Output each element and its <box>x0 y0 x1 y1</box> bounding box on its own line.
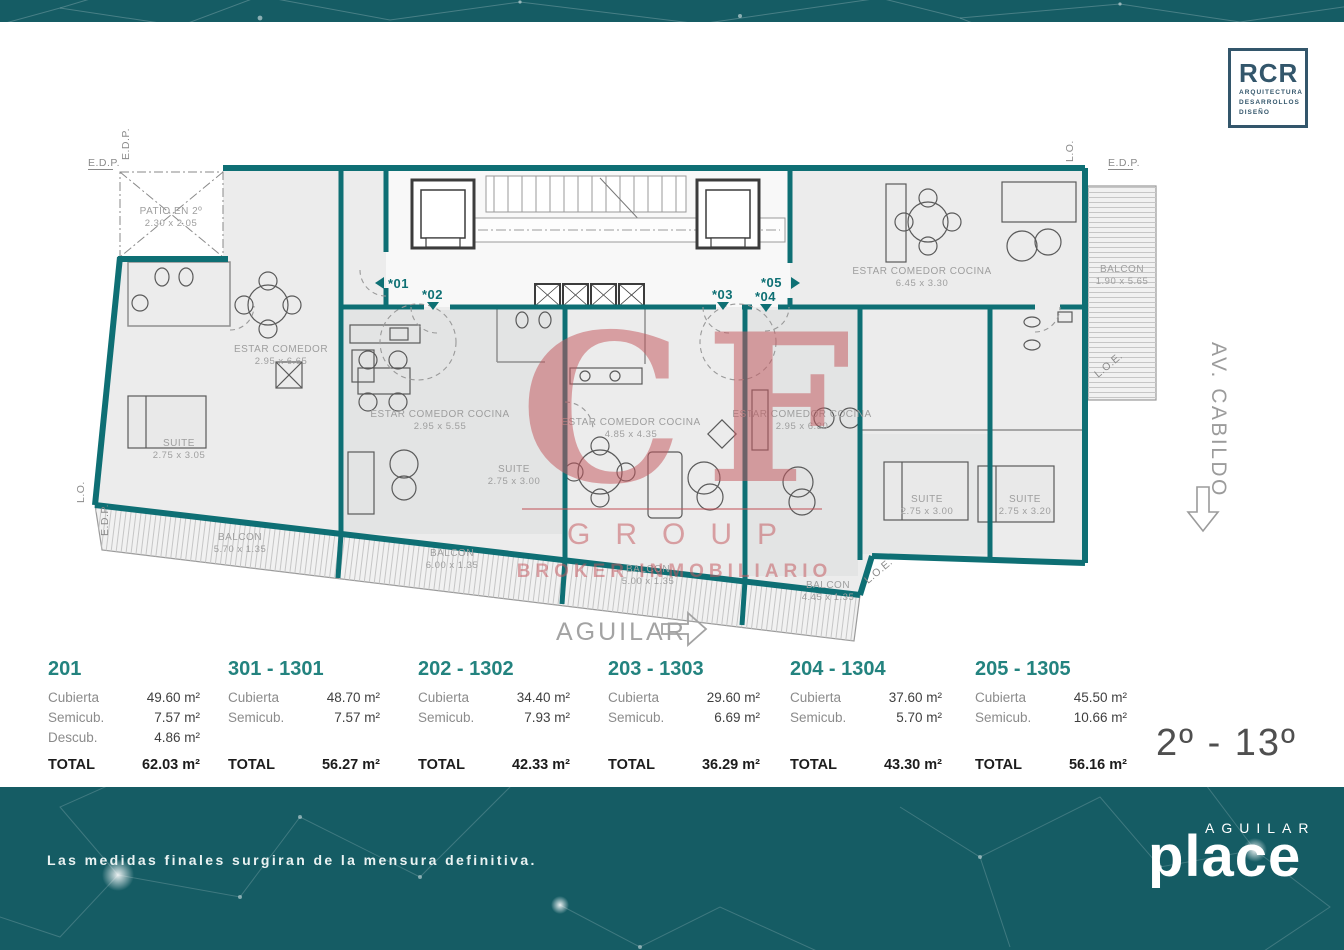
unit-card-203-1303: 203 - 1303 Cubierta29.60 m² Semicub.6.69… <box>608 658 760 773</box>
constellation-pattern-bottom <box>0 787 1344 950</box>
disclaimer-text: Las medidas finales surgiran de la mensu… <box>47 852 537 868</box>
page: { "brand_rcr": { "name": "RCR", "lines":… <box>0 0 1344 950</box>
balcony-label: BALCON <box>218 532 262 543</box>
area-value: 7.57 m² <box>334 708 380 728</box>
room-dims: 2.95 x 6.65 <box>255 356 308 367</box>
total-label: TOTAL <box>790 757 837 773</box>
patio-label: PATIO EN 2º <box>140 206 203 217</box>
area-label: Cubierta <box>608 688 659 708</box>
area-label: Cubierta <box>790 688 841 708</box>
elevator-right-icon <box>697 180 759 248</box>
unit-title: 204 - 1304 <box>790 658 942 681</box>
direction-label: AGUILAR <box>556 618 687 646</box>
area-label: Semicub. <box>228 708 284 728</box>
room-dims: 2.75 x 3.00 <box>901 506 954 517</box>
balcony-dims: 4.45 x 1.35 <box>802 592 855 603</box>
total-label: TOTAL <box>228 757 275 773</box>
floors-range-label: 2º - 13º <box>1156 722 1297 765</box>
total-label: TOTAL <box>608 757 655 773</box>
area-value: 34.40 m² <box>517 688 570 708</box>
edge-label-edp-rot: E.D.P. <box>120 128 132 160</box>
area-label: Semicub. <box>608 708 664 728</box>
area-label: Descub. <box>48 728 98 748</box>
entry-label-04: *04 <box>755 289 776 304</box>
area-value: 29.60 m² <box>707 688 760 708</box>
room-label: ESTAR COMEDOR COCINA <box>732 409 871 420</box>
room-label: ESTAR COMEDOR COCINA <box>852 266 991 277</box>
area-value: 45.50 m² <box>1074 688 1127 708</box>
room-label: SUITE <box>498 464 530 475</box>
balcony-label: BALCON <box>626 564 670 575</box>
edge-label-edp-right: E.D.P. <box>1108 157 1140 169</box>
room-dims: 4.85 x 4.35 <box>605 429 658 440</box>
area-value: 4.86 m² <box>154 728 200 748</box>
balcony-label: BALCON <box>1100 264 1144 275</box>
room-dims: 6.45 x 3.30 <box>896 278 949 289</box>
room-label: ESTAR COMEDOR COCINA <box>370 409 509 420</box>
total-value: 36.29 m² <box>702 757 760 773</box>
total-value: 56.27 m² <box>322 757 380 773</box>
patio-dims: 2.30 x 2.05 <box>145 218 198 229</box>
unit-card-201: 201 Cubierta49.60 m² Semicub.7.57 m² Des… <box>48 658 200 773</box>
unit-card-202-1302: 202 - 1302 Cubierta34.40 m² Semicub.7.93… <box>418 658 570 773</box>
total-label: TOTAL <box>975 757 1022 773</box>
edge-label-edp-left-bottom: E.D.P. <box>99 504 111 536</box>
area-label: Semicub. <box>418 708 474 728</box>
room-label: SUITE <box>911 494 943 505</box>
area-label: Semicub. <box>48 708 104 728</box>
area-label: Cubierta <box>228 688 279 708</box>
edge-label-edp: E.D.P. <box>88 157 120 169</box>
area-value: 49.60 m² <box>147 688 200 708</box>
area-value: 7.93 m² <box>524 708 570 728</box>
elevator-left-icon <box>412 180 474 248</box>
unit-card-204-1304: 204 - 1304 Cubierta37.60 m² Semicub.5.70… <box>790 658 942 773</box>
room-label: ESTAR COMEDOR <box>234 344 328 355</box>
area-label: Cubierta <box>975 688 1026 708</box>
unit-card-301-1301: 301 - 1301 Cubierta48.70 m² Semicub.7.57… <box>228 658 380 773</box>
total-value: 42.33 m² <box>512 757 570 773</box>
area-label: Semicub. <box>790 708 846 728</box>
balcony-label: BALCON <box>430 548 474 559</box>
entry-label-02: *02 <box>422 287 443 302</box>
unit-card-205-1305: 205 - 1305 Cubierta45.50 m² Semicub.10.6… <box>975 658 1127 773</box>
edge-label-lo-left: L.O. <box>75 481 87 503</box>
room-dims: 2.95 x 6.30 <box>776 421 829 432</box>
room-tint-204 <box>748 310 858 576</box>
unit-title: 205 - 1305 <box>975 658 1127 681</box>
edge-label-lo-right: L.O. <box>1064 140 1076 162</box>
total-value: 56.16 m² <box>1069 757 1127 773</box>
area-value: 6.69 m² <box>714 708 760 728</box>
room-label: SUITE <box>163 438 195 449</box>
balcony-dims: 5.70 x 1.35 <box>214 544 267 555</box>
balcony-dims: 5.00 x 1.35 <box>622 576 675 587</box>
area-label: Cubierta <box>48 688 99 708</box>
area-value: 37.60 m² <box>889 688 942 708</box>
room-dims: 2.75 x 3.00 <box>488 476 541 487</box>
unit-title: 301 - 1301 <box>228 658 380 681</box>
area-value: 48.70 m² <box>327 688 380 708</box>
room-dims: 2.75 x 3.20 <box>999 506 1052 517</box>
balcony-label: BALCON <box>806 580 850 591</box>
unit-title: 203 - 1303 <box>608 658 760 681</box>
balcony-dims: 1.90 x 5.65 <box>1096 276 1149 287</box>
room-dims: 2.95 x 5.55 <box>414 421 467 432</box>
total-label: TOTAL <box>418 757 465 773</box>
balcony-dims: 6.00 x 1.35 <box>426 560 479 571</box>
entry-label-01: *01 <box>388 276 409 291</box>
total-value: 43.30 m² <box>884 757 942 773</box>
entry-label-05: *05 <box>761 275 782 290</box>
room-label: SUITE <box>1009 494 1041 505</box>
project-brand-bottom: place <box>1148 828 1301 886</box>
unit-title: 202 - 1302 <box>418 658 570 681</box>
area-value: 7.57 m² <box>154 708 200 728</box>
street-label: AV. CABILDO <box>1207 342 1230 498</box>
area-label: Semicub. <box>975 708 1031 728</box>
total-label: TOTAL <box>48 757 95 773</box>
room-label: ESTAR COMEDOR COCINA <box>561 417 700 428</box>
area-value: 10.66 m² <box>1074 708 1127 728</box>
area-value: 5.70 m² <box>896 708 942 728</box>
total-value: 62.03 m² <box>142 757 200 773</box>
area-label: Cubierta <box>418 688 469 708</box>
unit-title: 201 <box>48 658 200 681</box>
entry-label-03: *03 <box>712 287 733 302</box>
footer-band <box>0 787 1344 950</box>
room-dims: 2.75 x 3.05 <box>153 450 206 461</box>
